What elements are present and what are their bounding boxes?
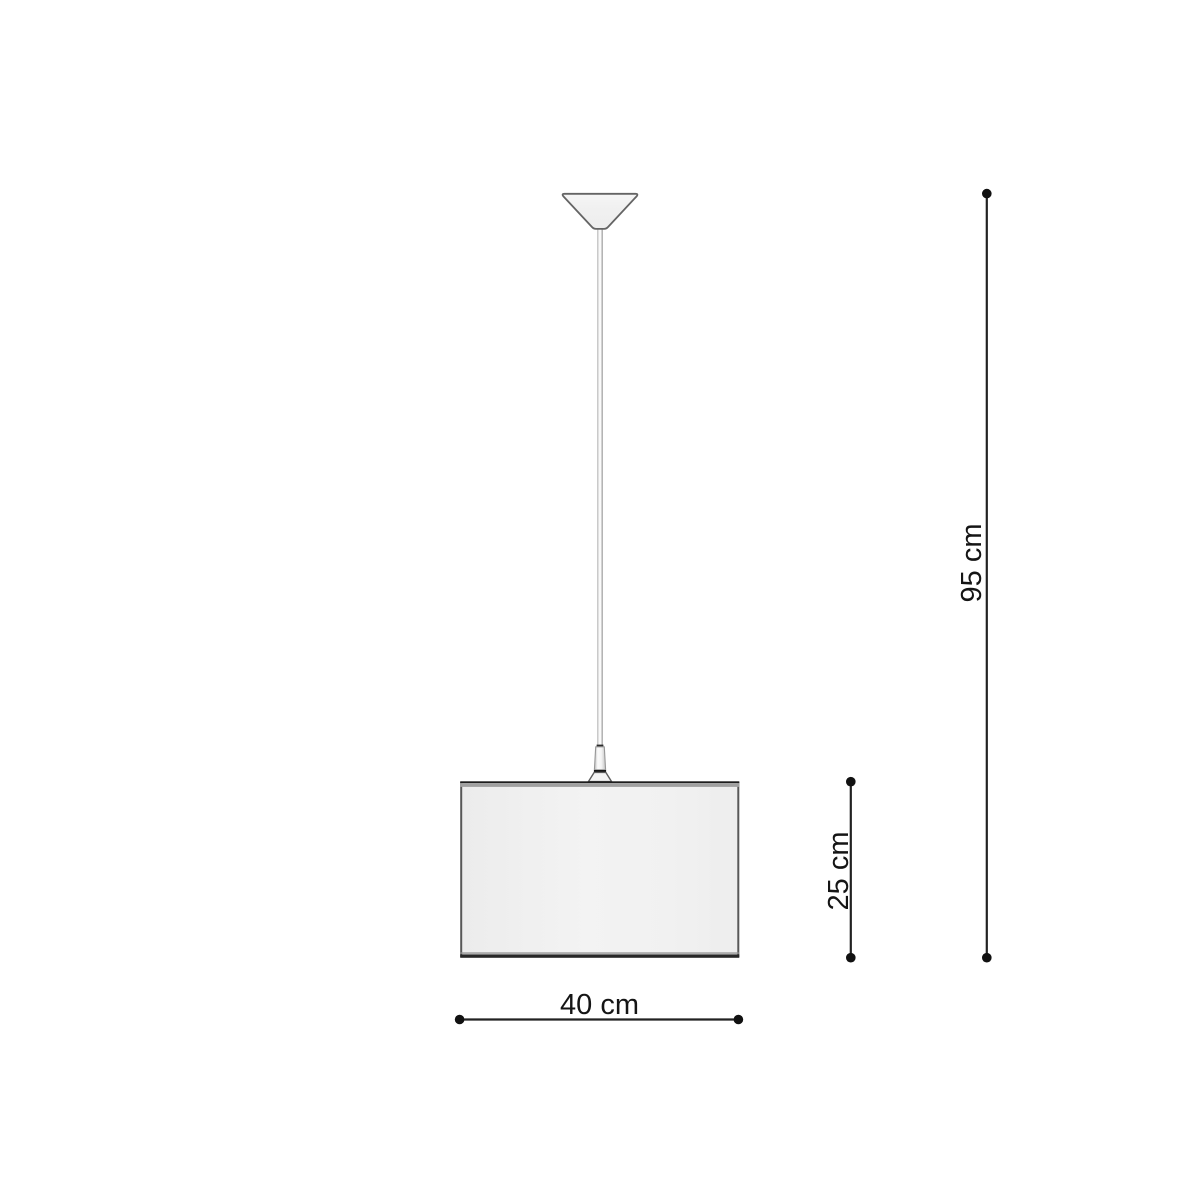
svg-text:25 cm: 25 cm <box>823 832 855 911</box>
svg-text:40 cm: 40 cm <box>560 989 639 1021</box>
svg-text:95 cm: 95 cm <box>956 524 988 603</box>
